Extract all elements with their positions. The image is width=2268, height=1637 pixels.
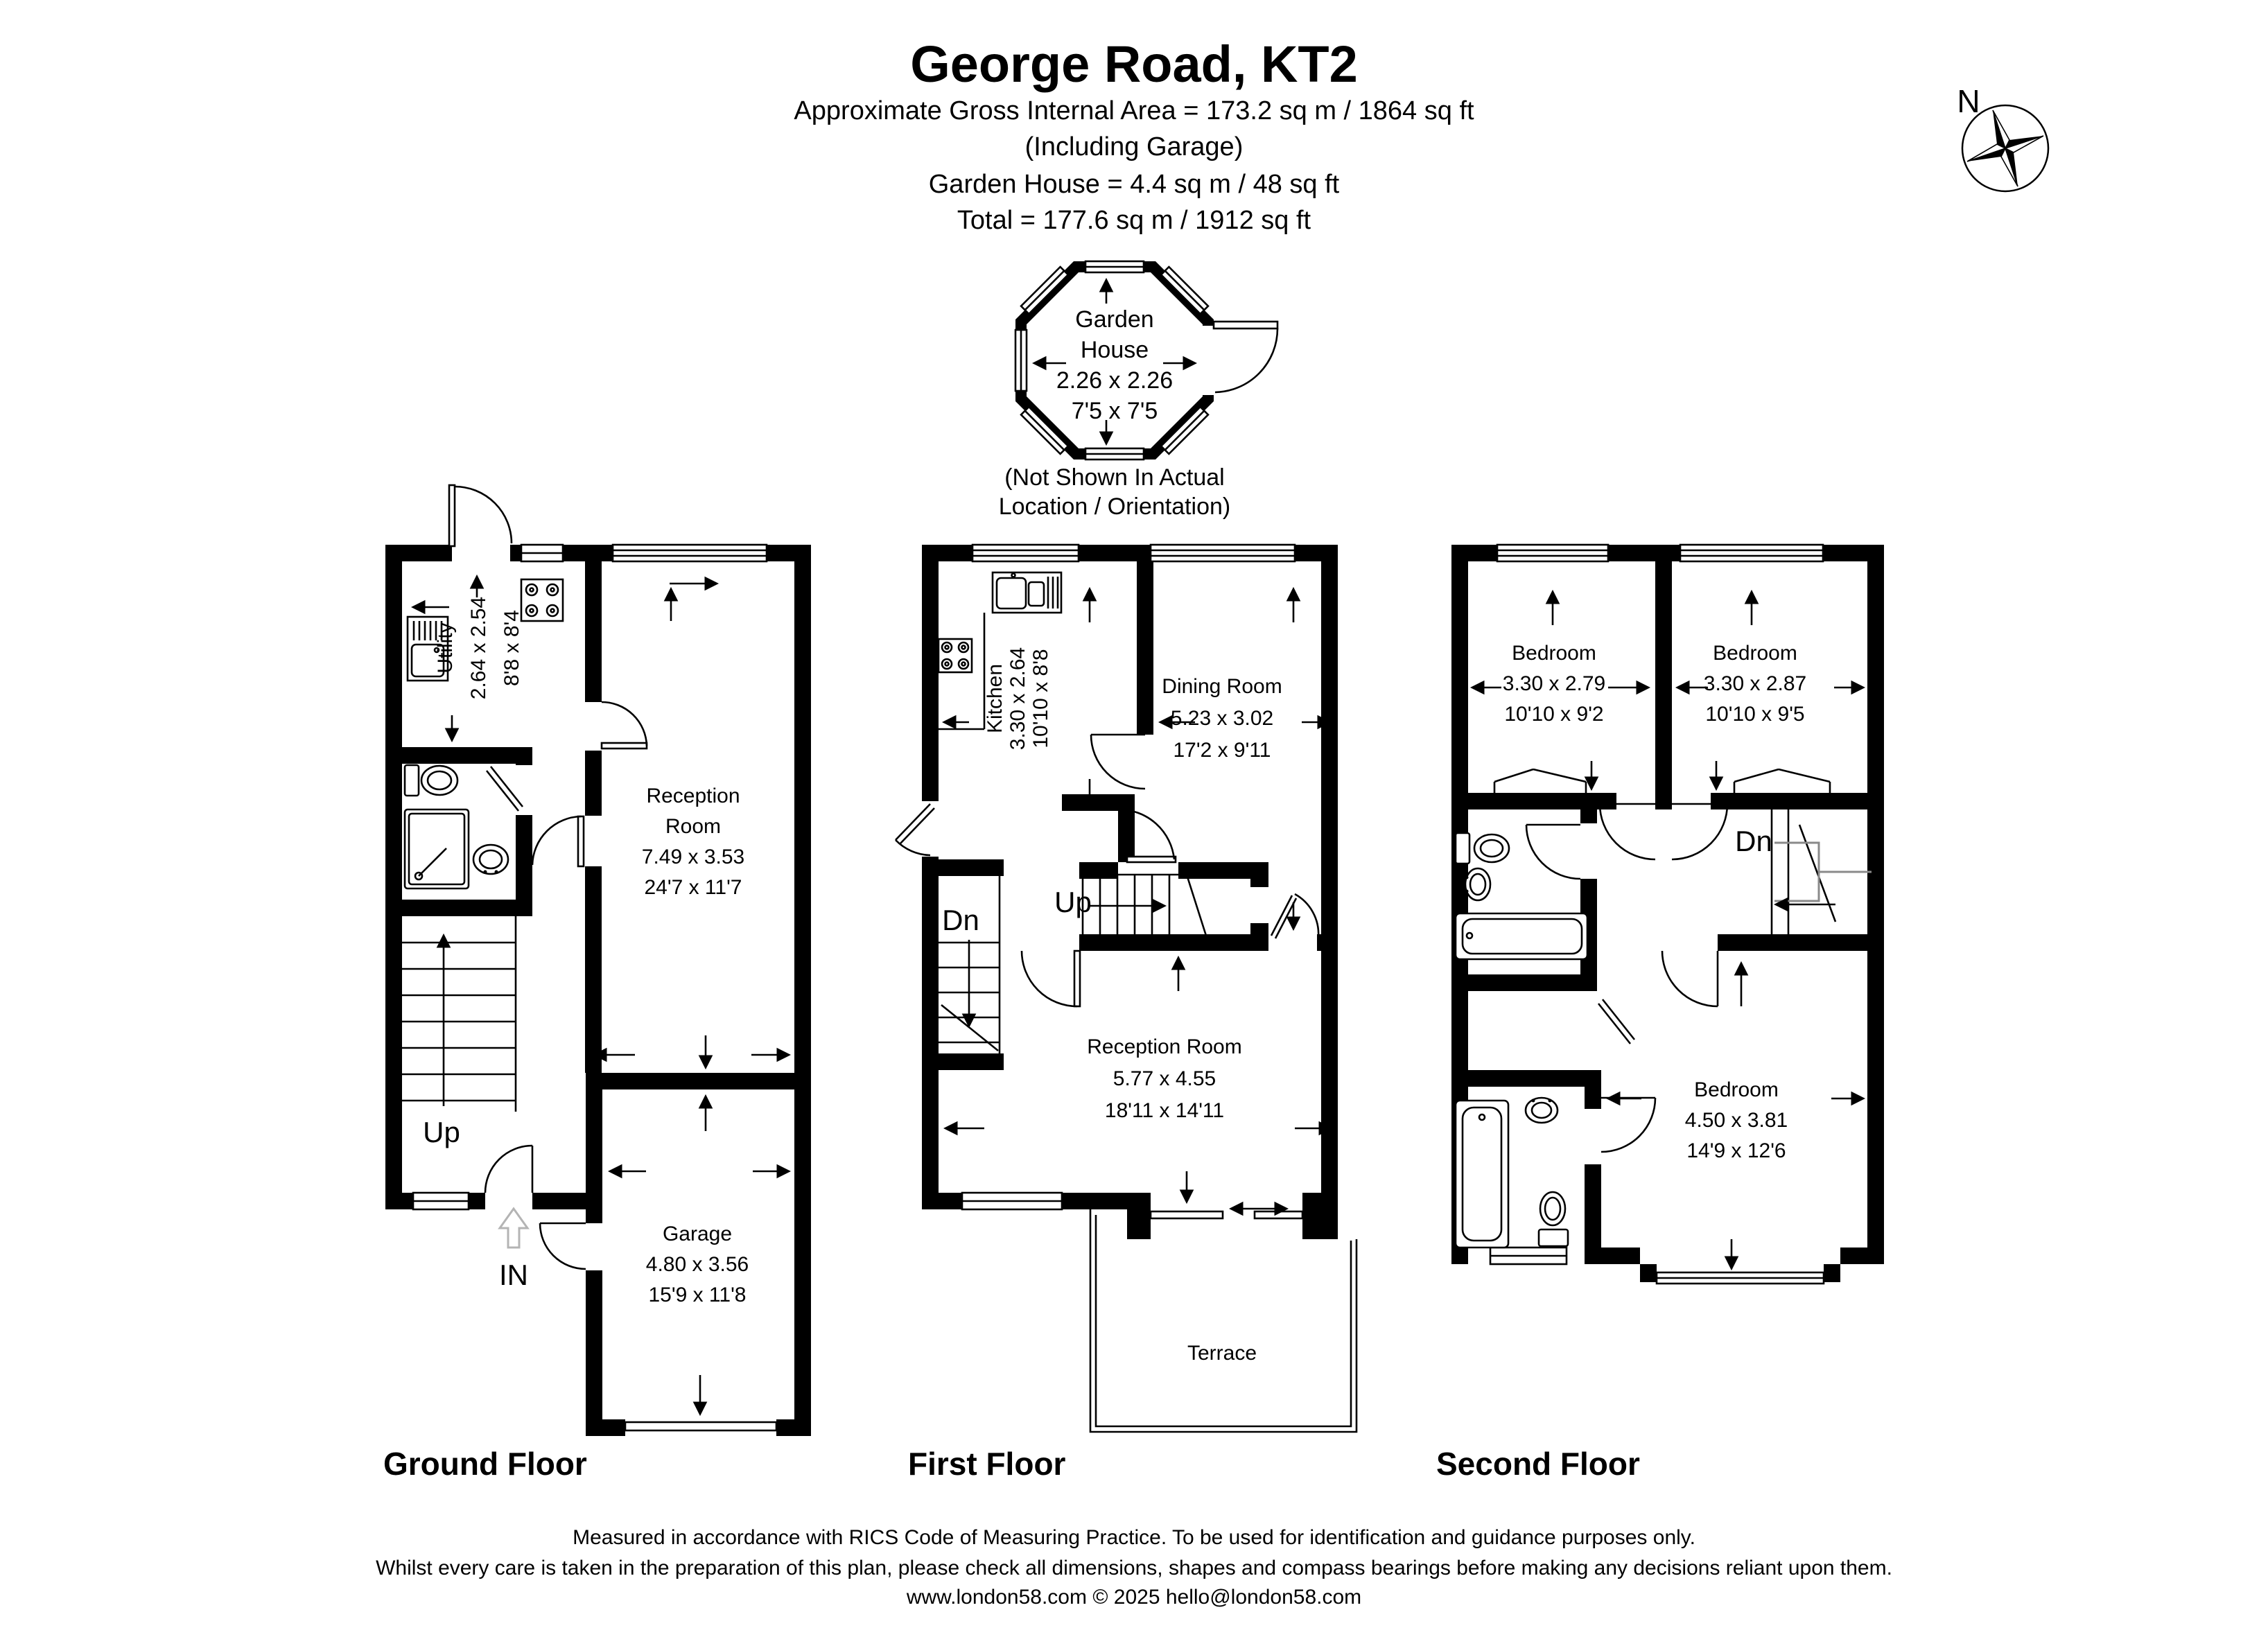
ground-reception-metric: 7.49 x 3.53 xyxy=(642,846,744,868)
bedroom2-metric: 3.30 x 2.87 xyxy=(1704,672,1806,695)
ground-walls xyxy=(385,545,811,1436)
bedroom1-imperial: 10'10 x 9'2 xyxy=(1504,703,1603,726)
kitchen-sink-icon xyxy=(993,572,1061,613)
bedroom2-label: Bedroom xyxy=(1713,642,1797,665)
hob-icon xyxy=(521,579,563,621)
utility-imperial: 8'8 x 8'4 xyxy=(500,610,523,686)
title-block: George Road, KT2 Approximate Gross Inter… xyxy=(794,35,1474,235)
footer-line1: Measured in accordance with RICS Code of… xyxy=(573,1526,1695,1549)
dining-room-metric: 5.23 x 3.02 xyxy=(1171,707,1273,730)
garden-house-door xyxy=(1203,322,1277,395)
kitchen-metric: 3.30 x 2.64 xyxy=(1006,647,1029,750)
floorplan-canvas: George Road, KT2 Approximate Gross Inter… xyxy=(0,0,2268,1637)
ground-reception-imperial: 24'7 x 11'7 xyxy=(644,876,742,899)
bathroom1-basin-icon xyxy=(1465,868,1491,900)
second-floor-title: Second Floor xyxy=(1436,1446,1640,1482)
first-floor-title: First Floor xyxy=(908,1446,1066,1482)
ground-floor-title: Ground Floor xyxy=(383,1446,587,1482)
first-reception-label: Reception Room xyxy=(1087,1035,1241,1058)
first-stairs-up xyxy=(1083,875,1206,937)
shower-tray-icon xyxy=(405,809,469,888)
ground-stairs-up xyxy=(402,916,516,1112)
ground-reception-label: Room xyxy=(665,815,721,838)
bathroom2-bath-icon xyxy=(1456,1101,1508,1248)
garage-imperial: 15'9 x 11'8 xyxy=(648,1284,746,1306)
title-gardenhouse-line: Garden House = 4.4 sq m / 48 sq ft xyxy=(929,170,1340,199)
bedroom3-imperial: 14'9 x 12'6 xyxy=(1686,1139,1786,1162)
kitchen-imperial: 10'10 x 8'8 xyxy=(1029,649,1052,748)
garden-house-name: Garden xyxy=(1075,306,1153,333)
bathroom2-basin-icon xyxy=(1526,1098,1558,1123)
wc-basin-icon xyxy=(473,845,508,874)
footer-line3: www.london58.com © 2025 hello@london58.c… xyxy=(906,1586,1361,1609)
ground-reception-label: Reception xyxy=(646,785,740,807)
garage-metric: 4.80 x 3.56 xyxy=(646,1253,749,1276)
bathroom1-toilet-icon xyxy=(1456,833,1509,864)
first-stairs-down xyxy=(939,876,1000,1053)
title-garage-note: (Including Garage) xyxy=(1025,132,1244,161)
utility-metric: 2.64 x 2.54 xyxy=(467,597,490,699)
terrace-outline xyxy=(1090,1209,1357,1432)
dining-room-imperial: 17'2 x 9'11 xyxy=(1173,739,1271,762)
garden-house-note: Location / Orientation) xyxy=(999,493,1231,520)
garden-house-size-imperial: 7'5 x 7'5 xyxy=(1072,398,1158,424)
garage-label: Garage xyxy=(663,1223,732,1245)
bathroom2-toilet-icon xyxy=(1539,1192,1568,1246)
kitchen-label: Kitchen xyxy=(984,664,1006,733)
page-title: George Road, KT2 xyxy=(910,35,1358,93)
compass-north-label: N xyxy=(1957,83,1980,119)
bedroom2-imperial: 10'10 x 9'5 xyxy=(1705,703,1804,726)
garden-house-size-metric: 2.26 x 2.26 xyxy=(1056,367,1173,394)
first-reception-metric: 5.77 x 4.55 xyxy=(1113,1067,1216,1090)
first-reception-imperial: 18'11 x 14'11 xyxy=(1105,1099,1224,1122)
bedroom1-metric: 3.30 x 2.79 xyxy=(1503,672,1605,695)
footer-disclaimer: Measured in accordance with RICS Code of… xyxy=(376,1526,1892,1609)
title-total-line: Total = 177.6 sq m / 1912 sq ft xyxy=(957,206,1311,235)
second-stairs-down xyxy=(1772,809,1872,934)
entrance-in-label: IN xyxy=(499,1259,528,1291)
second-dn-label: Dn xyxy=(1735,825,1772,857)
second-floor-plan: Bedroom 3.30 x 2.79 10'10 x 9'2 Bedroom … xyxy=(1436,545,1884,1482)
ground-up-label: Up xyxy=(423,1116,460,1148)
garden-house-plan: Garden House 2.26 x 2.26 7'5 x 7'5 (Not … xyxy=(999,261,1277,520)
ground-floor-plan: Utility 2.64 x 2.54 8'8 x 8'4 Reception … xyxy=(383,485,811,1482)
terrace-label: Terrace xyxy=(1187,1342,1257,1365)
garden-house-note: (Not Shown In Actual xyxy=(1004,464,1225,491)
kitchen-hob-icon xyxy=(939,639,972,672)
dining-room-label: Dining Room xyxy=(1162,675,1282,698)
first-floor-plan: Kitchen 3.30 x 2.64 10'10 x 8'8 Dining R… xyxy=(896,545,1357,1482)
wc-toilet-icon xyxy=(405,765,457,796)
bedroom3-metric: 4.50 x 3.81 xyxy=(1685,1109,1788,1132)
bedroom1-label: Bedroom xyxy=(1512,642,1596,665)
entrance-arrow-icon xyxy=(500,1209,527,1248)
garden-house-name: House xyxy=(1081,337,1149,363)
first-dn-label: Dn xyxy=(942,904,979,936)
first-up-label: Up xyxy=(1054,886,1092,918)
footer-line2: Whilst every care is taken in the prepar… xyxy=(376,1557,1892,1579)
compass-rose-icon: N xyxy=(1957,83,2048,191)
utility-label: Utility xyxy=(434,622,457,673)
bathroom1-bath-icon xyxy=(1456,913,1587,959)
title-area-line: Approximate Gross Internal Area = 173.2 … xyxy=(794,96,1474,125)
bedroom3-label: Bedroom xyxy=(1694,1078,1779,1101)
